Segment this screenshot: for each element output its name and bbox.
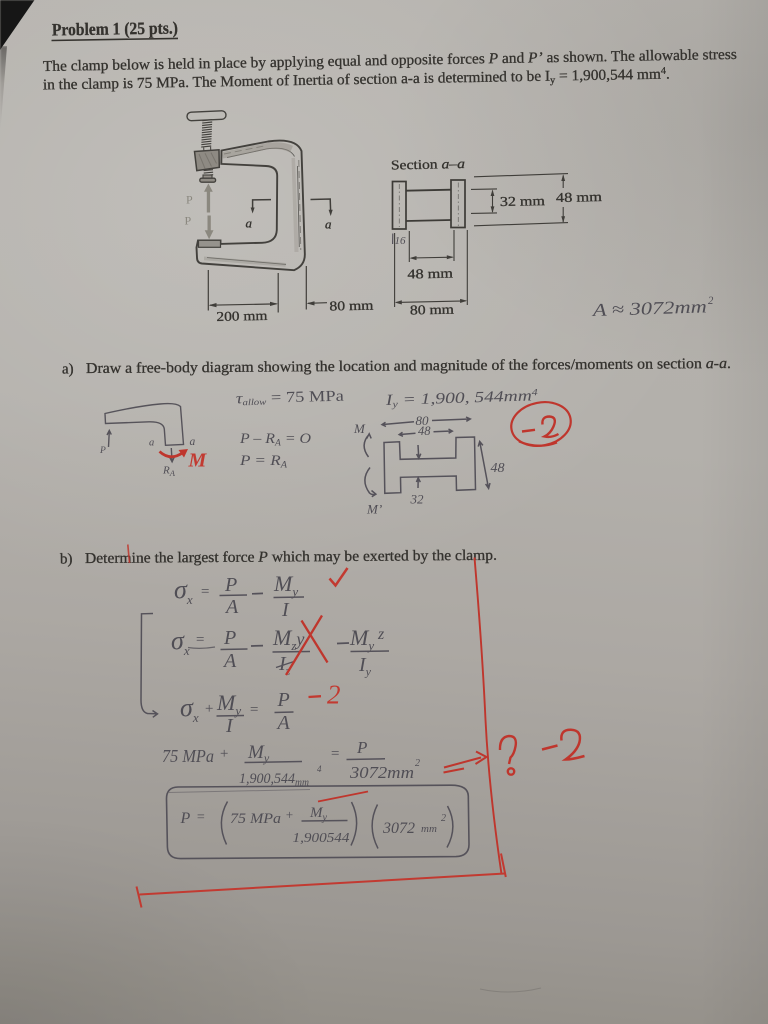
svg-text:A: A bbox=[222, 650, 237, 672]
svg-text:32 mm: 32 mm bbox=[500, 193, 546, 209]
svg-text:A ≈ 3072mm: A ≈ 3072mm bbox=[591, 296, 707, 320]
svg-text:32: 32 bbox=[410, 492, 425, 507]
svg-text:3072: 3072 bbox=[382, 820, 415, 837]
svg-text:=: = bbox=[200, 584, 210, 600]
svg-text:M: M bbox=[353, 421, 366, 436]
svg-text:2: 2 bbox=[708, 295, 714, 307]
svg-text:80 mm: 80 mm bbox=[329, 298, 374, 314]
svg-text:a: a bbox=[149, 438, 154, 449]
svg-text:a: a bbox=[190, 436, 196, 448]
svg-text:3072mm: 3072mm bbox=[349, 763, 414, 782]
svg-text:Determine the largest force P: Determine the largest force P which may … bbox=[85, 548, 497, 567]
svg-text:P: P bbox=[224, 574, 237, 596]
svg-text:A: A bbox=[224, 596, 239, 618]
svg-text:I: I bbox=[281, 599, 290, 621]
svg-text:=: = bbox=[195, 632, 205, 648]
svg-text:P: P bbox=[186, 193, 193, 207]
svg-text:48: 48 bbox=[491, 461, 505, 476]
svg-text:M: M bbox=[188, 450, 208, 472]
svg-text:P: P bbox=[223, 627, 236, 649]
svg-text:2: 2 bbox=[415, 758, 420, 769]
svg-text:σx: σx bbox=[180, 693, 199, 725]
svg-text:mm: mm bbox=[421, 823, 437, 835]
svg-text:+: + bbox=[204, 701, 214, 717]
svg-text:Draw a free-body diagram showi: Draw a free-body diagram showing the loc… bbox=[86, 356, 731, 377]
svg-text:+: + bbox=[285, 807, 294, 822]
svg-text:My: My bbox=[349, 625, 374, 653]
svg-text:a: a bbox=[246, 216, 253, 231]
svg-text:a): a) bbox=[62, 361, 74, 377]
svg-text:Mzy: Mzy bbox=[272, 625, 304, 653]
svg-text:σx: σx bbox=[171, 626, 190, 658]
svg-text:2: 2 bbox=[327, 680, 341, 710]
svg-text:My: My bbox=[216, 690, 241, 718]
svg-text:P: P bbox=[185, 214, 192, 228]
svg-text:4: 4 bbox=[317, 764, 322, 774]
svg-text:Iy: Iy bbox=[358, 654, 372, 679]
svg-text:Iy = 1,900, 544mm4: Iy = 1,900, 544mm4 bbox=[384, 387, 538, 410]
svg-text:P: P bbox=[277, 689, 290, 711]
svg-text:48 mm: 48 mm bbox=[407, 266, 453, 282]
svg-text:=: = bbox=[330, 746, 340, 762]
svg-text:z: z bbox=[377, 626, 385, 643]
svg-text:75 MPa: 75 MPa bbox=[230, 811, 281, 827]
svg-text:Problem 1 (25 pts.): Problem 1 (25 pts.) bbox=[52, 18, 178, 40]
svg-text:P: P bbox=[180, 810, 191, 827]
svg-text:τallow = 75 MPa: τallow = 75 MPa bbox=[236, 388, 345, 408]
svg-text:M’: M’ bbox=[366, 502, 382, 517]
svg-text:48 mm: 48 mm bbox=[556, 189, 603, 205]
svg-text:P – RA = O: P – RA = O bbox=[239, 431, 311, 448]
svg-text:I: I bbox=[225, 715, 234, 737]
svg-text:P = RA: P = RA bbox=[239, 453, 288, 470]
svg-text:80 mm: 80 mm bbox=[410, 302, 455, 318]
svg-text:b): b) bbox=[60, 551, 73, 567]
svg-text:16: 16 bbox=[395, 235, 407, 247]
svg-text:=: = bbox=[196, 810, 205, 825]
svg-text:=: = bbox=[249, 702, 259, 718]
svg-text:1,900544: 1,900544 bbox=[293, 830, 350, 845]
svg-text:200 mm: 200 mm bbox=[216, 308, 268, 324]
svg-text:P: P bbox=[99, 446, 106, 456]
svg-text:A: A bbox=[276, 712, 291, 734]
svg-text:75 MPa: 75 MPa bbox=[162, 746, 214, 766]
svg-text:My: My bbox=[273, 571, 298, 599]
svg-text:σx: σx bbox=[174, 575, 193, 607]
svg-text:a: a bbox=[325, 217, 332, 232]
svg-text:+: + bbox=[219, 746, 229, 762]
svg-text:P: P bbox=[356, 738, 367, 757]
svg-text:Section a–a: Section a–a bbox=[391, 156, 466, 173]
svg-text:2: 2 bbox=[441, 813, 446, 824]
svg-text:RA: RA bbox=[162, 465, 176, 479]
svg-text:48: 48 bbox=[418, 424, 431, 438]
